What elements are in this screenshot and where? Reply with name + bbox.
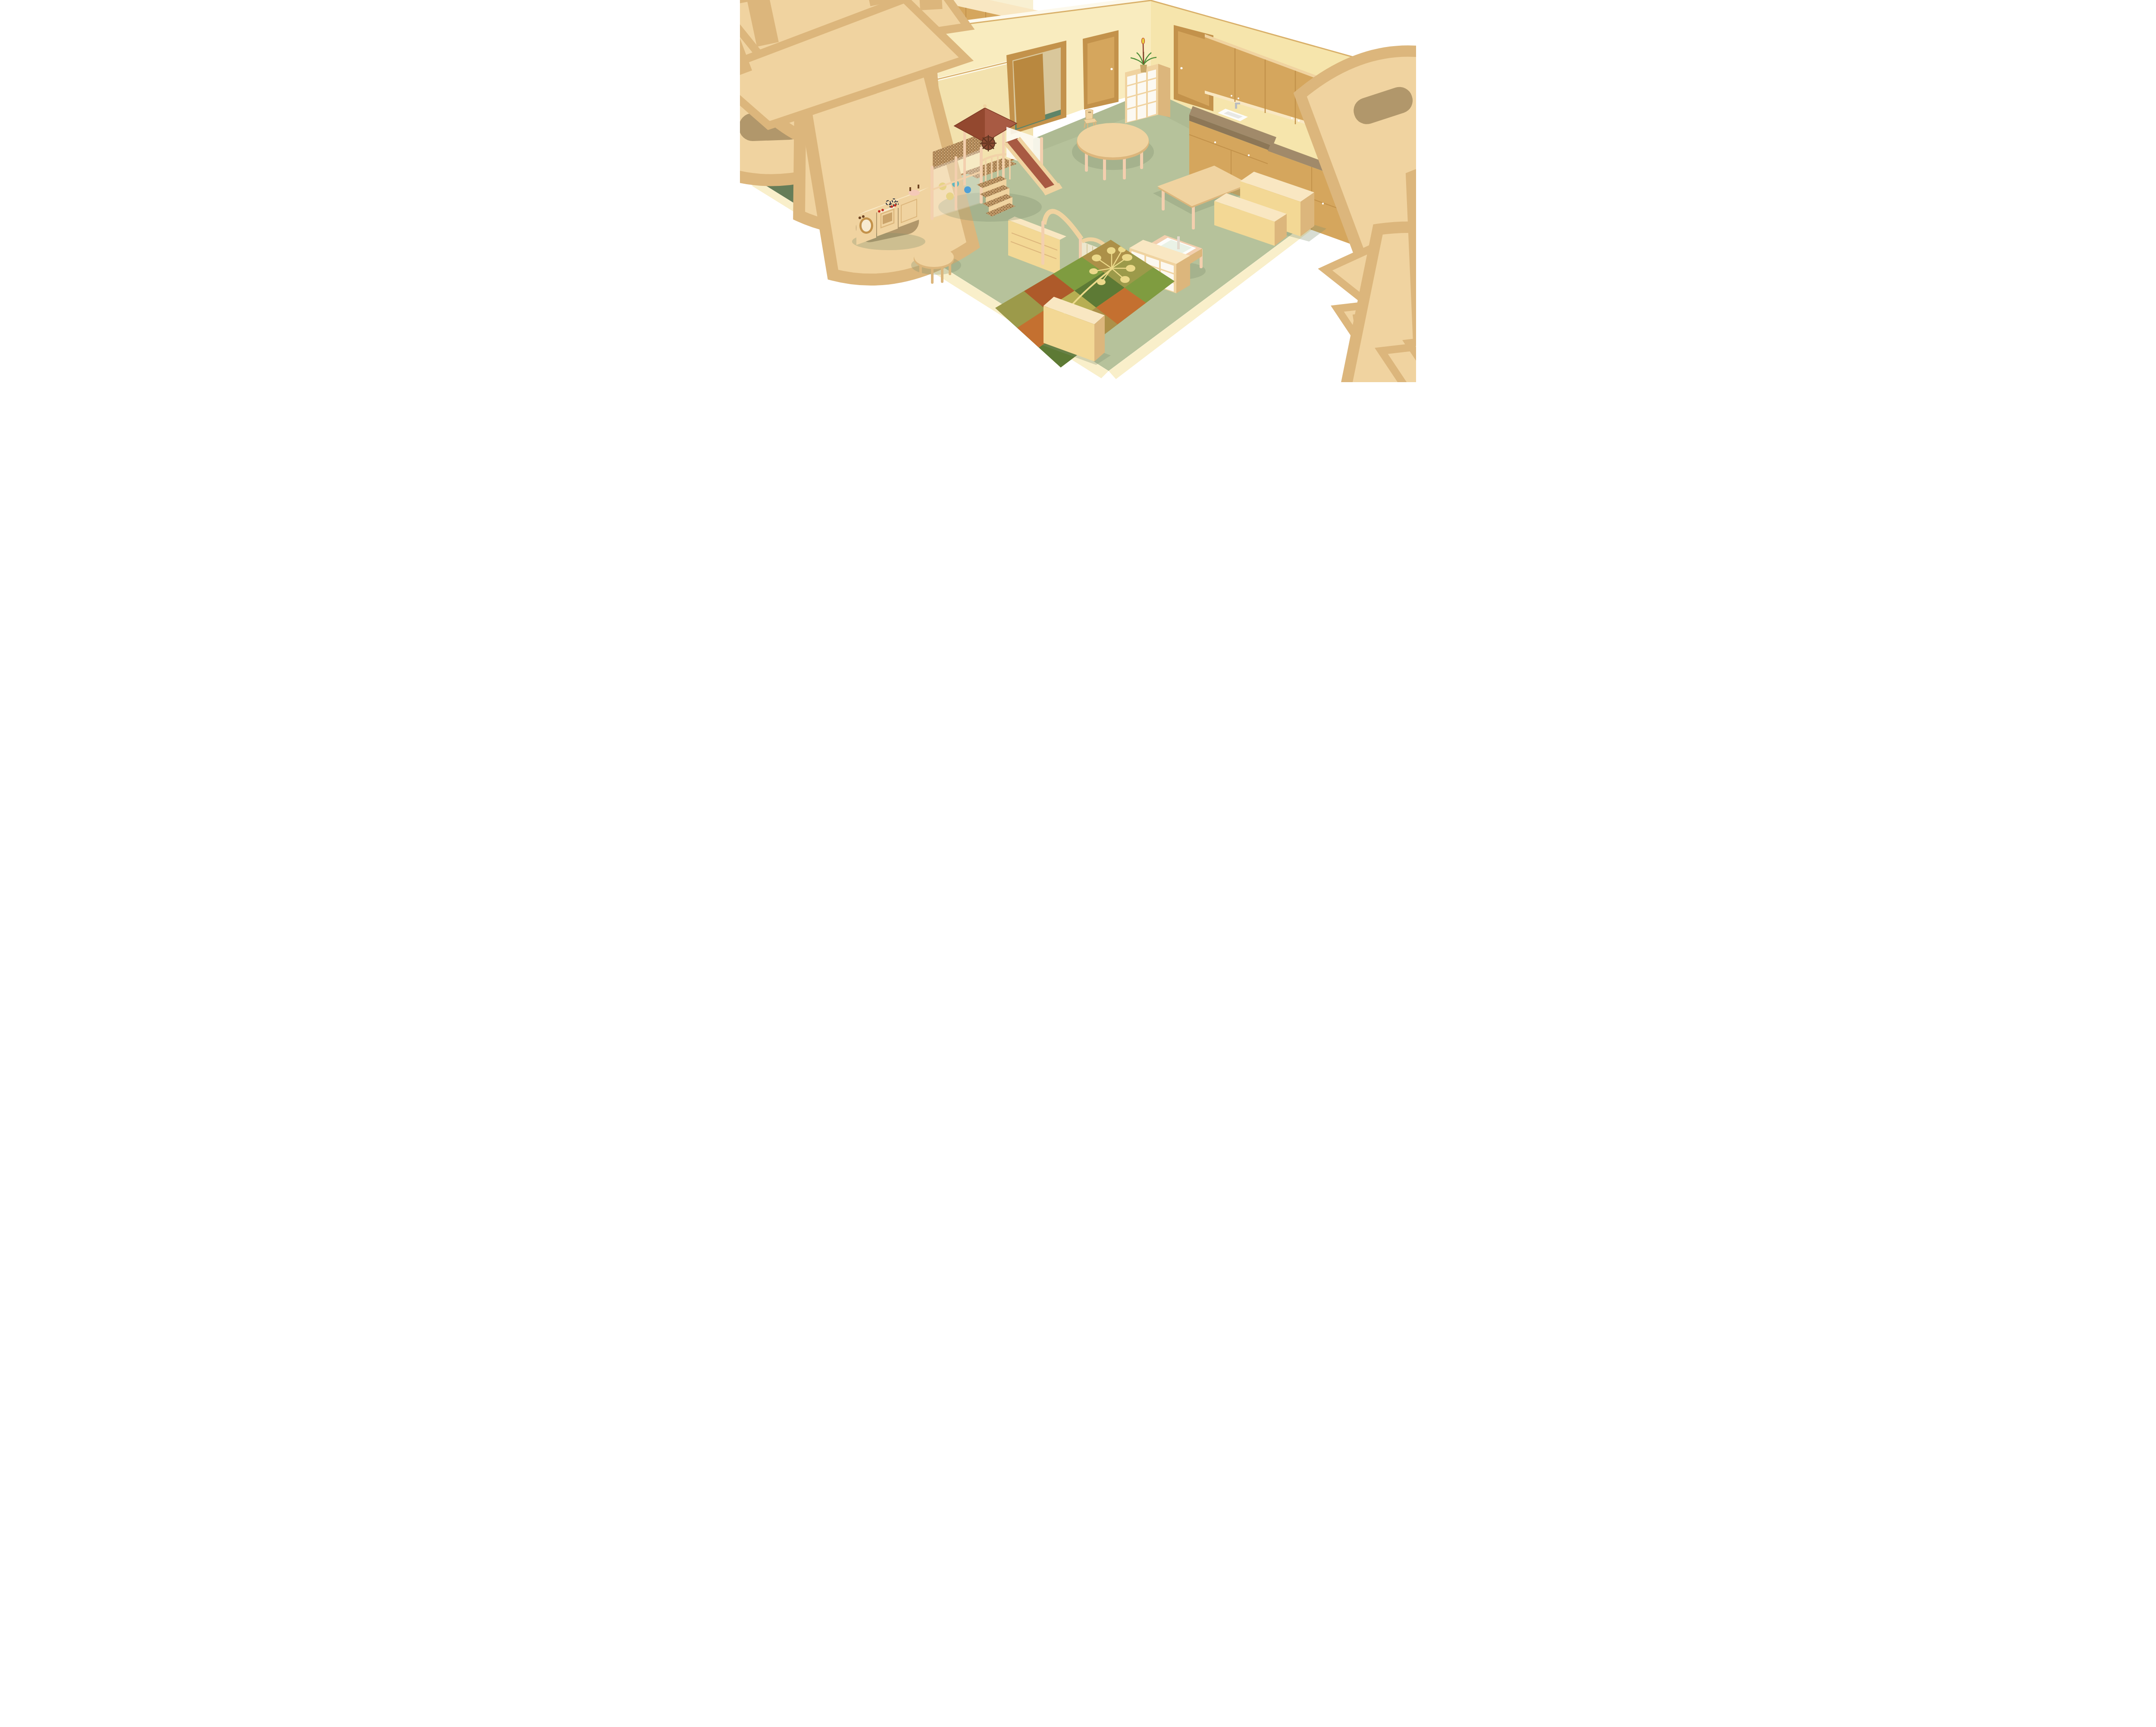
tower-post <box>963 129 966 185</box>
washer-window <box>862 220 871 232</box>
plant-flower <box>1142 38 1145 44</box>
sensory-pump <box>1177 236 1180 249</box>
faucet-spout <box>1235 103 1240 104</box>
cubby-bins <box>1126 69 1157 122</box>
classroom-render <box>740 0 1416 382</box>
ball-yellow <box>946 192 954 200</box>
toddler-table-top <box>914 247 954 267</box>
door-panel <box>1087 37 1114 104</box>
hutch-knob <box>1322 203 1324 204</box>
sink-faucet <box>918 185 919 188</box>
plant-pot <box>1140 65 1147 72</box>
table-top <box>1077 123 1149 157</box>
arch-post <box>1041 221 1044 265</box>
plant-spike <box>1143 43 1144 64</box>
canopy-finial <box>983 104 987 108</box>
door-middle <box>1083 30 1119 110</box>
drawer-knob <box>1248 154 1250 156</box>
washer-knob <box>859 217 861 219</box>
door-knob <box>1110 68 1112 70</box>
door-knob <box>1180 67 1182 69</box>
door-panel-ajar <box>1013 53 1045 129</box>
sink-faucet <box>909 187 911 191</box>
drawer-knob <box>1214 141 1216 143</box>
washer-knob <box>862 215 865 218</box>
door-panel <box>1178 31 1209 106</box>
scene-stage <box>740 0 1416 382</box>
ball-blue <box>964 186 971 193</box>
